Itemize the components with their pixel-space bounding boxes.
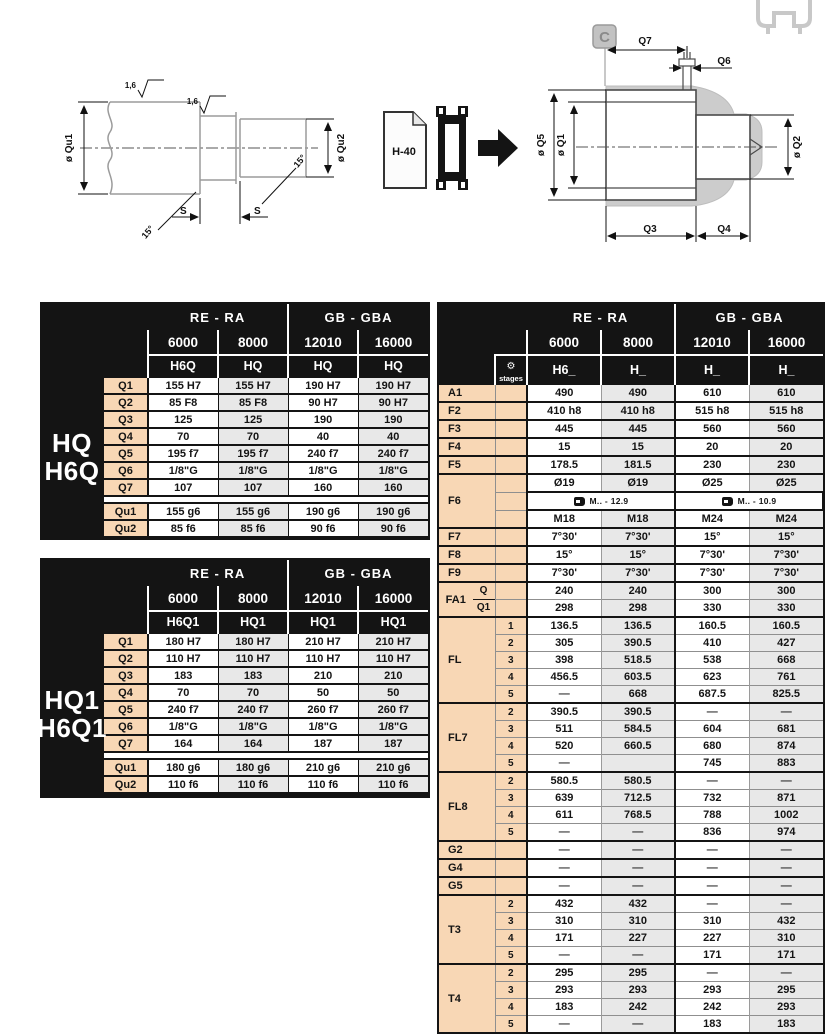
value-cell: 195 f7: [218, 445, 288, 462]
value-cell: 164: [148, 735, 218, 752]
value-cell: 687.5: [675, 686, 749, 704]
stage-cell: 4: [495, 669, 527, 686]
value-cell: 227: [675, 930, 749, 947]
value-cell: 7°30': [675, 546, 749, 564]
table-hq1-title: HQ1 H6Q1: [40, 632, 104, 796]
table-row: 4520660.5680874: [439, 738, 823, 755]
table-row: Q5240 f7240 f7260 f7260 f7: [104, 701, 428, 718]
angle-label-1: 15°: [139, 223, 156, 240]
value-cell: 171: [527, 930, 601, 947]
stage-cell: [495, 456, 527, 474]
value-cell: 155 H7: [148, 377, 218, 394]
value-cell: 456.5: [527, 669, 601, 686]
value-cell: 70: [148, 684, 218, 701]
row-label: Q2: [104, 394, 148, 411]
model-header: H6Q1: [148, 611, 218, 633]
value-cell: Ø25: [749, 474, 823, 492]
roughness-icon: 1,6: [187, 97, 199, 106]
table-row: 2305390.5410427: [439, 635, 823, 652]
table-row: 298298330330: [439, 600, 823, 618]
header-spacer: [439, 355, 495, 384]
stage-cell: [495, 528, 527, 546]
value-cell: 445: [527, 420, 601, 438]
stage-cell: [495, 420, 527, 438]
value-cell: —: [527, 877, 601, 895]
table-row: M18M18M24M24: [439, 510, 823, 528]
stages-label: stages: [496, 374, 526, 383]
value-cell: 604: [675, 721, 749, 738]
table-row: F815°15°7°30'7°30': [439, 546, 823, 564]
dim-label-s1: S: [180, 206, 187, 217]
table-row: Q1155 H7155 H7190 H7190 H7: [104, 377, 428, 394]
table-row: FA1QQ1240240300300: [439, 582, 823, 600]
value-cell: 260 f7: [288, 701, 358, 718]
value-cell: 515 h8: [675, 402, 749, 420]
group-label: F7: [439, 528, 495, 546]
dim-label-q1: ø Q1: [556, 133, 567, 156]
value-cell: 164: [218, 735, 288, 752]
stage-cell: 3: [495, 913, 527, 930]
value-cell: 300: [675, 582, 749, 600]
table-row: 4456.5603.5623761: [439, 669, 823, 686]
value-cell: 871: [749, 790, 823, 807]
value-cell: 190 H7: [288, 377, 358, 394]
value-cell: —: [749, 703, 823, 721]
value-cell: 40: [358, 428, 428, 445]
doc-label: H-40: [392, 146, 416, 158]
column-group-re-ra: RE - RA: [148, 304, 288, 330]
value-cell: 242: [601, 999, 675, 1016]
value-cell: —: [601, 824, 675, 842]
size-header: 12010: [288, 586, 358, 611]
value-cell: 190 g6: [288, 503, 358, 520]
model-header: H_: [749, 355, 823, 384]
value-cell: 181.5: [601, 456, 675, 474]
table-dimensions: RE - RA GB - GBA 6000 8000 12010 16000 ⚙…: [437, 302, 825, 1034]
value-cell: —: [601, 877, 675, 895]
table-row: G4————: [439, 859, 823, 877]
table-row: Qu1155 g6155 g6190 g6190 g6: [104, 503, 428, 520]
value-cell: 7°30': [527, 528, 601, 546]
stage-cell: [495, 474, 527, 492]
group-label: F9: [439, 564, 495, 582]
section-marker: C: [593, 25, 616, 48]
value-cell: 410 h8: [527, 402, 601, 420]
value-cell: 660.5: [601, 738, 675, 755]
table-row: 3639712.5732871: [439, 790, 823, 807]
size-header: 8000: [218, 330, 288, 355]
value-cell: 110 H7: [358, 650, 428, 667]
value-cell: —: [749, 964, 823, 982]
value-cell: 230: [675, 456, 749, 474]
value-cell: 15°: [749, 528, 823, 546]
value-cell: 490: [527, 384, 601, 402]
value-cell: —: [749, 859, 823, 877]
group-label: A1: [439, 384, 495, 402]
stage-cell: [495, 582, 527, 600]
group-label: T3: [439, 895, 495, 964]
model-header: H6_: [527, 355, 601, 384]
value-cell: 110 f6: [148, 776, 218, 792]
value-cell: 520: [527, 738, 601, 755]
value-cell: 183: [675, 1016, 749, 1033]
value-cell: 330: [749, 600, 823, 618]
value-cell: 305: [527, 635, 601, 652]
table-row: F3445445560560: [439, 420, 823, 438]
value-cell: 610: [749, 384, 823, 402]
value-cell: Ø19: [527, 474, 601, 492]
size-header: 16000: [358, 330, 428, 355]
value-cell: 611: [527, 807, 601, 824]
value-cell: 180 g6: [148, 759, 218, 776]
value-cell: 183: [749, 1016, 823, 1033]
document-icon: H-40: [384, 112, 426, 188]
bolt-class-label: M.. - 10.9: [738, 496, 777, 506]
table-row: Q3125125190190: [104, 411, 428, 428]
table-row: Q3183183210210: [104, 667, 428, 684]
header-spacer: [104, 611, 148, 633]
value-cell: 560: [749, 420, 823, 438]
value-cell: 432: [749, 913, 823, 930]
stage-cell: 4: [495, 930, 527, 947]
value-cell: 390.5: [527, 703, 601, 721]
row-label: Q4: [104, 428, 148, 445]
value-cell: 603.5: [601, 669, 675, 686]
table-row: Q7107107160160: [104, 479, 428, 496]
value-cell: —: [527, 755, 601, 773]
value-cell: 90 f6: [288, 520, 358, 536]
value-cell: 390.5: [601, 703, 675, 721]
column-group-gb-gba: GB - GBA: [288, 560, 428, 586]
row-label: Q2: [104, 650, 148, 667]
value-cell: 511: [527, 721, 601, 738]
size-header: 12010: [675, 330, 749, 355]
header-spacer: [104, 355, 148, 377]
value-cell: 50: [288, 684, 358, 701]
value-cell: 187: [358, 735, 428, 752]
size-header: 16000: [358, 586, 428, 611]
value-cell: 190: [358, 411, 428, 428]
table-row: Qu1180 g6180 g6210 g6210 g6: [104, 759, 428, 776]
dim-label-q7: Q7: [638, 36, 652, 47]
value-cell: 190 H7: [358, 377, 428, 394]
value-cell: M18: [601, 510, 675, 528]
group-label: FL: [439, 617, 495, 703]
model-header: H6Q: [148, 355, 218, 377]
value-cell: 178.5: [527, 456, 601, 474]
value-cell: 195 f7: [148, 445, 218, 462]
value-cell: 295: [601, 964, 675, 982]
table-hq-title: HQ H6Q: [40, 376, 104, 538]
dim-label-q3: Q3: [643, 224, 657, 235]
value-cell: 515 h8: [749, 402, 823, 420]
value-cell: 1002: [749, 807, 823, 824]
value-cell: 180 H7: [148, 633, 218, 650]
value-cell: 70: [218, 428, 288, 445]
table-row: FL1136.5136.5160.5160.5: [439, 617, 823, 635]
model-header: HQ: [358, 355, 428, 377]
value-cell: 240 f7: [148, 701, 218, 718]
value-cell: 1/8"G: [358, 718, 428, 735]
table-row: Qu2110 f6110 f6110 f6110 f6: [104, 776, 428, 792]
value-cell: 1/8"G: [288, 718, 358, 735]
value-cell: 580.5: [527, 772, 601, 790]
value-cell: 7°30': [601, 564, 675, 582]
sub-label: Q1: [473, 599, 495, 616]
row-label: Q6: [104, 718, 148, 735]
stage-cell: 5: [495, 1016, 527, 1033]
value-cell: —: [749, 895, 823, 913]
table-row: F77°30'7°30'15°15°: [439, 528, 823, 546]
value-cell: 681: [749, 721, 823, 738]
row-label: Q3: [104, 667, 148, 684]
value-cell: —: [601, 947, 675, 965]
value-cell: 298: [527, 600, 601, 618]
value-cell: 1/8"G: [148, 462, 218, 479]
stage-cell: 1: [495, 617, 527, 635]
table-row: Q285 F885 F890 H790 H7: [104, 394, 428, 411]
table-row: T32432432——: [439, 895, 823, 913]
table-row: FL82580.5580.5——: [439, 772, 823, 790]
group-label: FA1QQ1: [439, 582, 495, 617]
title-line: HQ: [52, 429, 92, 457]
value-cell: 883: [749, 755, 823, 773]
reference-group: H-40: [380, 104, 532, 196]
value-cell: 712.5: [601, 790, 675, 807]
coupling-icon: [436, 106, 468, 190]
table-row: 4183242242293: [439, 999, 823, 1016]
value-cell: 761: [749, 669, 823, 686]
row-label: Q6: [104, 462, 148, 479]
table-row: 5——836974: [439, 824, 823, 842]
table-row: Q5195 f7195 f7240 f7240 f7: [104, 445, 428, 462]
dim-label-q2: ø Q2: [792, 135, 803, 158]
row-label: Q5: [104, 445, 148, 462]
bolt-class-cell: M.. - 12.9: [527, 492, 675, 510]
value-cell: 20: [675, 438, 749, 456]
value-cell: 155 H7: [218, 377, 288, 394]
size-header: 6000: [148, 586, 218, 611]
row-label: Q3: [104, 411, 148, 428]
value-cell: 7°30': [749, 564, 823, 582]
table-row: 3310310310432: [439, 913, 823, 930]
row-label: Q5: [104, 701, 148, 718]
value-cell: 40: [288, 428, 358, 445]
header-spacer: [439, 330, 527, 355]
stage-cell: [495, 564, 527, 582]
value-cell: 300: [749, 582, 823, 600]
value-cell: 90 f6: [358, 520, 428, 536]
value-cell: 210 H7: [288, 633, 358, 650]
header-spacer: [104, 560, 148, 586]
stage-cell: 4: [495, 999, 527, 1016]
table-row: Q61/8"G1/8"G1/8"G1/8"G: [104, 462, 428, 479]
stage-cell: 2: [495, 635, 527, 652]
dim-label-q5: ø Q5: [536, 133, 547, 156]
value-cell: 15: [601, 438, 675, 456]
table-row: A1490490610610: [439, 384, 823, 402]
shaft-end-drawing: ø Qu1 ø Qu2 S S 15° 15° 1,6 1,6: [50, 62, 380, 252]
table-row: T42295295——: [439, 964, 823, 982]
value-cell: 668: [601, 686, 675, 704]
value-cell: 680: [675, 738, 749, 755]
value-cell: 210: [288, 667, 358, 684]
value-cell: 538: [675, 652, 749, 669]
value-cell: —: [675, 964, 749, 982]
row-label: Qu2: [104, 776, 148, 792]
size-header: 8000: [218, 586, 288, 611]
table-row: 5——183183: [439, 1016, 823, 1033]
value-cell: 183: [218, 667, 288, 684]
table-row: FL72390.5390.5——: [439, 703, 823, 721]
dim-label-s2: S: [254, 206, 261, 217]
value-cell: 15°: [527, 546, 601, 564]
column-group-re-ra: RE - RA: [527, 304, 675, 330]
value-cell: 15°: [601, 546, 675, 564]
value-cell: 623: [675, 669, 749, 686]
value-cell: 1/8"G: [218, 462, 288, 479]
value-cell: —: [527, 947, 601, 965]
value-cell: 1/8"G: [218, 718, 288, 735]
stage-cell: [495, 841, 527, 859]
table-hq-h6q: HQ H6Q RE - RA GB - GBA 6000 8000 12010 …: [40, 302, 430, 540]
value-cell: Ø19: [601, 474, 675, 492]
value-cell: 160.5: [749, 617, 823, 635]
group-label: G5: [439, 877, 495, 895]
value-cell: 171: [675, 947, 749, 965]
table-row: F2410 h8410 h8515 h8515 h8: [439, 402, 823, 420]
group-label: F6: [439, 474, 495, 528]
bolt-class-label: M.. - 12.9: [590, 496, 629, 506]
model-header: H_: [675, 355, 749, 384]
value-cell: —: [527, 1016, 601, 1033]
value-cell: 90 H7: [288, 394, 358, 411]
value-cell: 227: [601, 930, 675, 947]
value-cell: —: [675, 703, 749, 721]
gear-icon: ⚙: [507, 361, 516, 372]
value-cell: 639: [527, 790, 601, 807]
table-row: 5—745883: [439, 755, 823, 773]
size-header: 6000: [527, 330, 601, 355]
group-label: F3: [439, 420, 495, 438]
value-cell: —: [527, 686, 601, 704]
stage-cell: [495, 402, 527, 420]
row-label: Qu2: [104, 520, 148, 536]
value-cell: 85 f6: [218, 520, 288, 536]
value-cell: —: [675, 772, 749, 790]
bolt-class-cell: M.. - 10.9: [675, 492, 823, 510]
stage-cell: 4: [495, 807, 527, 824]
arrow-right-icon: [478, 129, 518, 167]
value-cell: 610: [675, 384, 749, 402]
value-cell: 70: [148, 428, 218, 445]
stage-cell: 5: [495, 686, 527, 704]
value-cell: 310: [675, 913, 749, 930]
value-cell: 240 f7: [358, 445, 428, 462]
value-cell: 560: [675, 420, 749, 438]
value-cell: 825.5: [749, 686, 823, 704]
row-label: Qu1: [104, 503, 148, 520]
value-cell: M24: [675, 510, 749, 528]
row-label: Q1: [104, 633, 148, 650]
value-cell: 293: [749, 999, 823, 1016]
value-cell: 242: [675, 999, 749, 1016]
value-cell: 298: [601, 600, 675, 618]
table-row: F415152020: [439, 438, 823, 456]
group-label: FL8: [439, 772, 495, 841]
value-cell: —: [527, 824, 601, 842]
value-cell: [601, 755, 675, 773]
value-cell: —: [527, 859, 601, 877]
value-cell: —: [601, 841, 675, 859]
value-cell: 584.5: [601, 721, 675, 738]
value-cell: —: [675, 841, 749, 859]
column-group-re-ra: RE - RA: [148, 560, 288, 586]
value-cell: —: [749, 772, 823, 790]
value-cell: 788: [675, 807, 749, 824]
value-cell: 293: [675, 982, 749, 999]
value-cell: 160: [288, 479, 358, 496]
value-cell: 293: [601, 982, 675, 999]
table-row: 3293293293295: [439, 982, 823, 999]
value-cell: 110 f6: [218, 776, 288, 792]
group-label: T4: [439, 964, 495, 1032]
stage-cell: 3: [495, 982, 527, 999]
value-cell: 110 f6: [288, 776, 358, 792]
table-row: G2————: [439, 841, 823, 859]
model-header: HQ1: [288, 611, 358, 633]
table-row: M.. - 12.9M.. - 10.9: [439, 492, 823, 510]
value-cell: 155 g6: [148, 503, 218, 520]
value-cell: 240 f7: [218, 701, 288, 718]
stage-cell: 5: [495, 824, 527, 842]
group-label-text: FA1: [439, 583, 473, 616]
stage-cell: [495, 877, 527, 895]
marker-letter: C: [599, 29, 610, 46]
value-cell: 15: [527, 438, 601, 456]
stage-cell: 3: [495, 721, 527, 738]
value-cell: 7°30': [527, 564, 601, 582]
table-row: Q470705050: [104, 684, 428, 701]
separator-row: [104, 752, 428, 759]
stage-cell: 2: [495, 772, 527, 790]
table-row: Q1180 H7180 H7210 H7210 H7: [104, 633, 428, 650]
value-cell: 20: [749, 438, 823, 456]
value-cell: 432: [601, 895, 675, 913]
header-spacer: [439, 304, 527, 330]
row-label: Qu1: [104, 759, 148, 776]
table-row: 5——171171: [439, 947, 823, 965]
value-cell: 1/8"G: [288, 462, 358, 479]
stage-cell: 2: [495, 895, 527, 913]
group-label: G4: [439, 859, 495, 877]
value-cell: 136.5: [527, 617, 601, 635]
hq1-dimension-table: RE - RA GB - GBA 6000 8000 12010 16000 H…: [104, 560, 428, 792]
value-cell: 1/8"G: [148, 718, 218, 735]
separator: [104, 496, 428, 503]
group-label: FL7: [439, 703, 495, 772]
value-cell: 110 f6: [358, 776, 428, 792]
dim-label-q6: Q6: [717, 56, 731, 67]
size-header: 6000: [148, 330, 218, 355]
dimensions-table: RE - RA GB - GBA 6000 8000 12010 16000 ⚙…: [439, 304, 824, 1032]
title-line: H6Q: [45, 457, 100, 485]
value-cell: 668: [749, 652, 823, 669]
value-cell: 50: [358, 684, 428, 701]
value-cell: 90 H7: [358, 394, 428, 411]
value-cell: 107: [148, 479, 218, 496]
catalog-page: { "colors":{"header_bg":"#141414","row_l…: [0, 0, 830, 1015]
